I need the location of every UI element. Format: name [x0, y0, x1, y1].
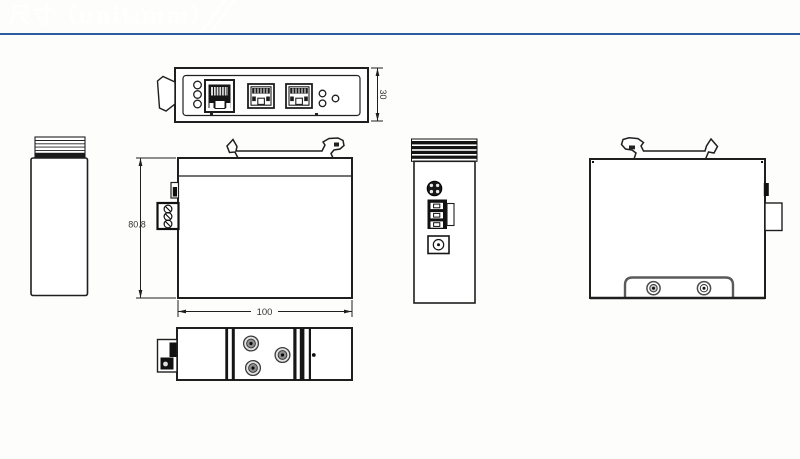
- panel-tick: [210, 113, 213, 116]
- terminal-block-icon: [158, 203, 179, 229]
- side-latch-icon: [764, 183, 769, 196]
- din-rail-clip-icon: [622, 138, 718, 159]
- terminal-block-side: [158, 340, 178, 373]
- panel-tick: [315, 113, 318, 116]
- mounting-plate: [625, 278, 733, 298]
- dimension-height-label: 80.8: [128, 220, 146, 230]
- top-view: [158, 68, 369, 122]
- pin-hole: [312, 353, 316, 357]
- dimension-drawing: 30: [0, 0, 800, 459]
- rj45-port-icon: [248, 84, 274, 108]
- dimension-width-label: 100: [257, 307, 273, 318]
- power-switch-icon: [171, 183, 179, 199]
- left-side-view: [31, 137, 88, 296]
- side-plug-icon: [158, 77, 176, 112]
- left-body-outline: [31, 158, 88, 296]
- front-body-outline: [178, 158, 352, 298]
- dc-jack-icon: [428, 236, 449, 254]
- din-rail-clip-icon: [227, 138, 344, 158]
- mounting-screw-icon: [647, 282, 660, 295]
- terminal-block-side: [765, 203, 782, 231]
- dimension-depth: 30: [371, 68, 388, 121]
- terminal-block-icon: [428, 200, 455, 230]
- case-screw-icon: [244, 336, 259, 351]
- front-view: [158, 138, 353, 298]
- case-screw-icon: [275, 348, 290, 363]
- rj45-port-icon: [286, 84, 312, 108]
- bottom-view: [158, 328, 353, 380]
- case-screw-icon: [246, 361, 261, 376]
- ground-screw-icon: [427, 181, 442, 196]
- bottom-body-outline: [177, 328, 352, 380]
- page: 尺寸（unit:mm）: [0, 0, 800, 459]
- back-view: [590, 138, 782, 298]
- din-clip-stripes: [412, 139, 478, 161]
- dimension-width: 100: [178, 300, 352, 318]
- dimension-depth-label: 30: [378, 89, 388, 99]
- side-body-outline: [414, 161, 475, 303]
- mounting-screw-icon: [697, 282, 710, 295]
- right-side-view: [412, 139, 478, 303]
- rj45-port-icon: [205, 80, 234, 112]
